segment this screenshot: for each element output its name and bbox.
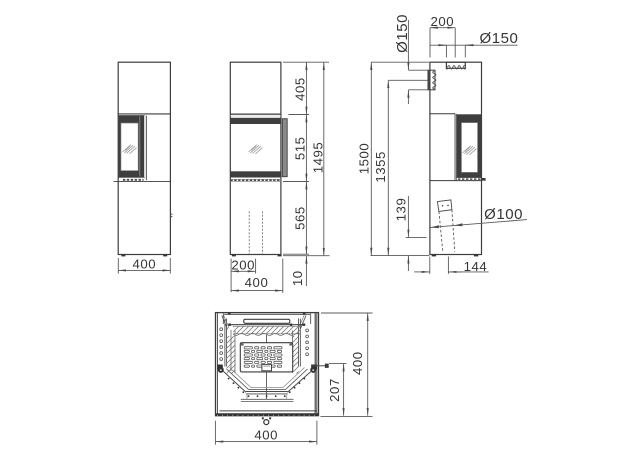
svg-text:Ø100: Ø100 [484,206,523,223]
svg-text:400: 400 [245,275,269,290]
svg-text:200: 200 [231,257,255,272]
svg-text:405: 405 [293,77,308,101]
svg-text:144: 144 [464,259,488,274]
svg-text:139: 139 [394,198,409,222]
svg-text:400: 400 [254,428,278,443]
svg-text:565: 565 [293,206,308,230]
svg-text:Ø150: Ø150 [394,14,411,53]
svg-text:1355: 1355 [373,151,388,183]
svg-text:1500: 1500 [357,143,372,175]
svg-text:Ø150: Ø150 [480,30,519,47]
svg-text:10: 10 [290,270,305,286]
svg-text:400: 400 [132,257,156,272]
svg-text:207: 207 [327,378,342,402]
svg-text:200: 200 [430,14,454,29]
svg-text:515: 515 [293,136,308,160]
svg-text:400: 400 [350,351,365,375]
svg-text:1495: 1495 [311,142,326,174]
